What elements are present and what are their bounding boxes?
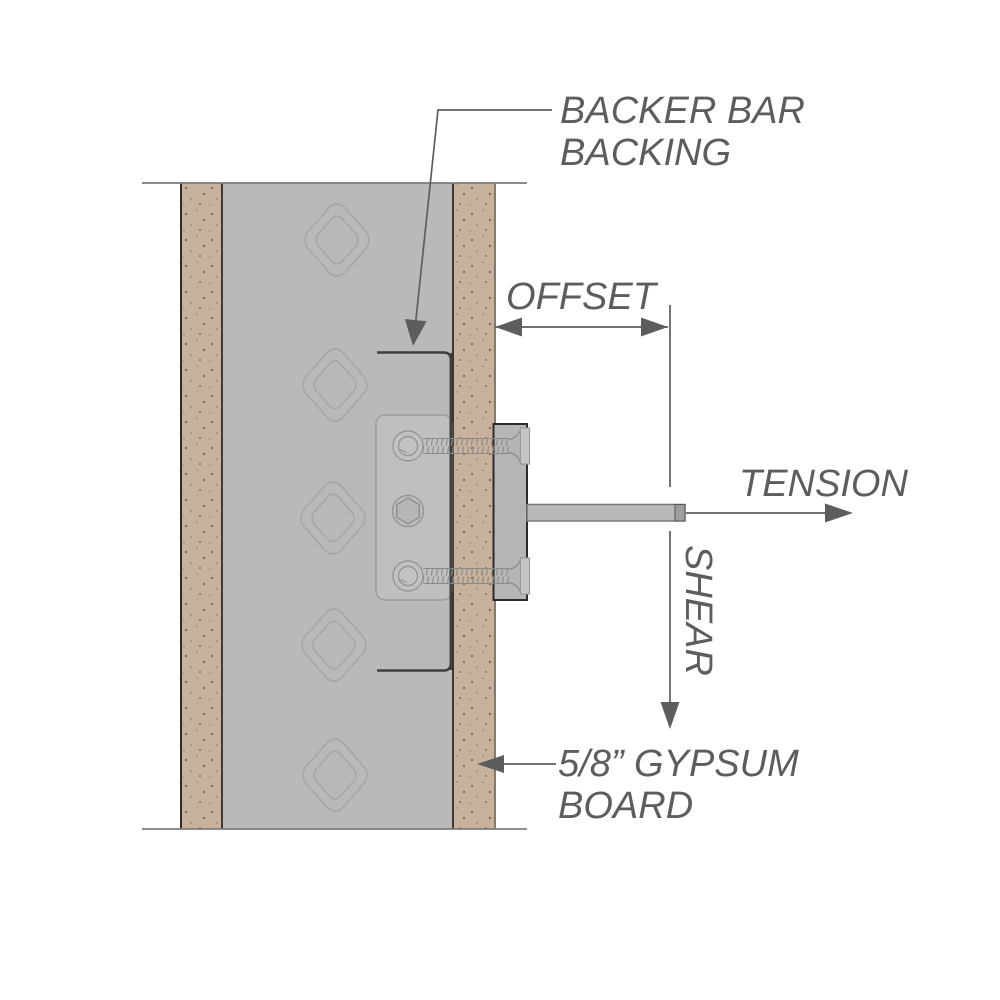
- offset-dimension-label: OFFSET: [506, 276, 659, 318]
- anchor-rod-end-cap: [675, 505, 685, 522]
- gypsum-label-line2: BOARD: [558, 785, 693, 827]
- detail-drawing-canvas: BACKER BAR BACKING OFFSET SHEAR TENSION …: [0, 0, 1000, 1000]
- shear-label: SHEAR: [677, 545, 719, 676]
- backer-bar-detail-drawing: BACKER BAR BACKING OFFSET SHEAR TENSION …: [0, 0, 1000, 1000]
- tension-label: TENSION: [739, 463, 908, 505]
- gypsum-label-line1: 5/8” GYPSUM: [558, 743, 799, 785]
- anchor-rod: [527, 505, 685, 522]
- backer-bar-label-line2: BACKING: [560, 132, 731, 174]
- hex-bolt: [393, 496, 424, 527]
- gypsum-right-speckle-texture: [453, 183, 495, 829]
- gypsum-left-speckle-texture: [181, 183, 222, 829]
- backer-bar-label-line1: BACKER BAR: [560, 90, 805, 132]
